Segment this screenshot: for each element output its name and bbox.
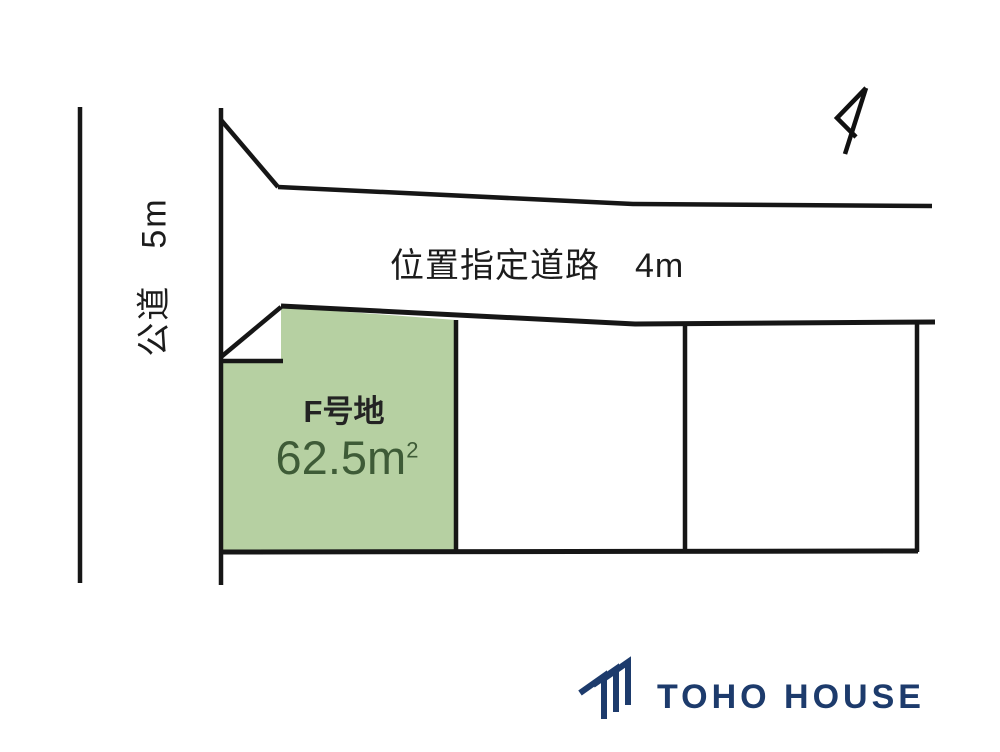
parcel-f-notch-diagonal [221, 307, 281, 357]
toho-house-roof-logo-icon [580, 662, 628, 719]
plot-layout-drawing: 公道 5m 位置指定道路 4m F号地 62.5m2 TOHO HOUSE [0, 0, 1000, 752]
parcel-f-area-label: 62.5m2 [238, 430, 456, 485]
south-boundary-line [219, 551, 918, 552]
north-arrow-icon [837, 88, 866, 154]
parcel-f-area-value: 62.5m [276, 431, 407, 484]
parcel-f-area-exponent: 2 [406, 437, 418, 462]
site-plan-canvas [0, 0, 1000, 752]
toho-house-logo-text: TOHO HOUSE [657, 678, 925, 717]
designated-road-label: 位置指定道路 4m [390, 238, 684, 287]
parcel-f-name-label: F号地 [244, 386, 444, 431]
road-mouth-diagonal-line [221, 120, 278, 187]
designated-road-upper-edge [278, 187, 932, 206]
public-road-label: 公道 5m [127, 197, 176, 356]
